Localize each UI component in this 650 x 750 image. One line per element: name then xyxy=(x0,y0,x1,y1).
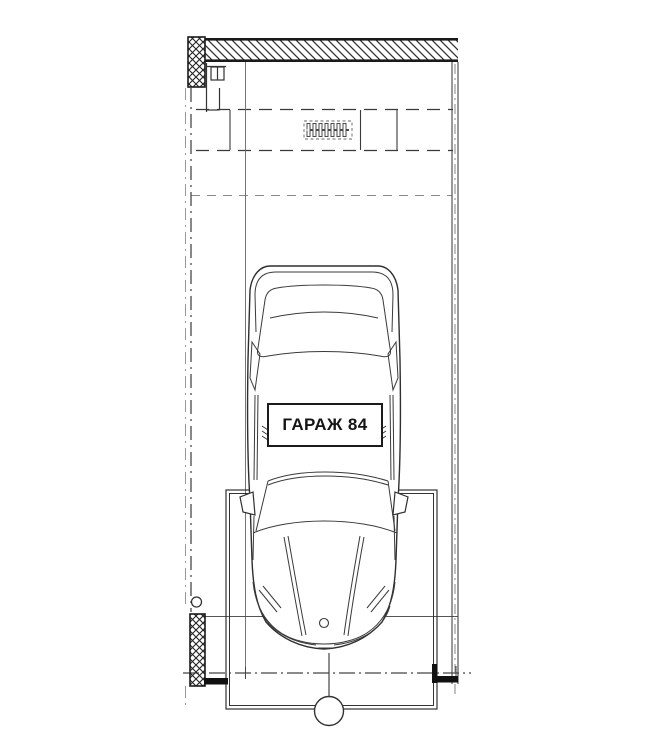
wall-fixture-symbol xyxy=(207,63,227,112)
door-spring-symbol xyxy=(304,121,352,139)
hood-emblem-circle xyxy=(320,619,329,628)
garage-side-wall-right xyxy=(452,62,458,698)
downpipe-symbol xyxy=(192,597,202,607)
car-body-outline xyxy=(248,266,401,649)
car-mirror-left xyxy=(240,492,255,515)
plan-linework xyxy=(0,0,650,750)
top-wall xyxy=(205,38,458,62)
masonry-pier-top xyxy=(188,37,205,87)
gate-jamb-left xyxy=(204,678,228,685)
car-mirror-right xyxy=(393,492,408,515)
grid-bubble xyxy=(315,697,344,726)
masonry-pier-bottom xyxy=(190,614,205,686)
car-top-view xyxy=(240,266,408,649)
garage-floor-plan: ГАРАЖ 84 xyxy=(0,0,650,750)
room-label-box: ГАРАЖ 84 xyxy=(267,403,383,447)
room-label-text: ГАРАЖ 84 xyxy=(282,415,367,435)
